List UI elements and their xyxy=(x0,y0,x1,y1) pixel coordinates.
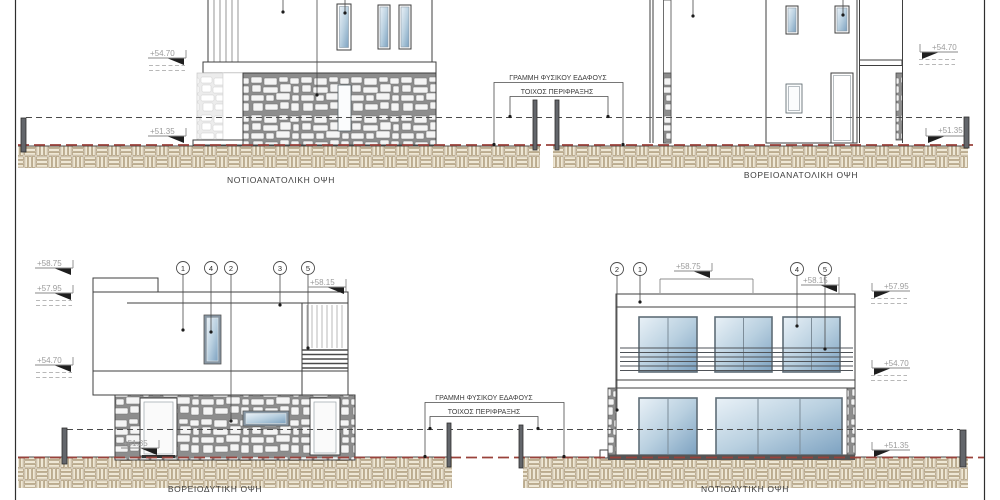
window xyxy=(204,315,221,364)
level-mark: +58.15 xyxy=(801,276,839,294)
porch-beam xyxy=(860,60,903,66)
window xyxy=(786,84,802,113)
keynote-number: 1 xyxy=(181,264,185,273)
level-value: +58.75 xyxy=(676,262,701,271)
floor-slab xyxy=(616,380,855,388)
level-value: +51.35 xyxy=(150,127,175,136)
level-value: +54.70 xyxy=(932,43,957,52)
level-mark: +58.75 xyxy=(674,262,712,278)
callout-label: ΤΟΙΧΟΣ ΠΕΡΙΦΡΑΞΗΣ xyxy=(521,89,594,96)
level-mark: +57.95 xyxy=(35,284,73,306)
keynote-number: 2 xyxy=(229,264,233,273)
stone-pier xyxy=(847,388,855,455)
elevation-title: ΝΟΤΙΟΑΝΑΤΟΛΙΚΗ ΟΨΗ xyxy=(227,175,335,185)
keynote-number: 4 xyxy=(795,265,799,274)
parapet-dimension-bracket xyxy=(660,279,753,293)
level-value: +57.95 xyxy=(884,282,909,291)
window xyxy=(378,5,390,49)
stone-wall-light xyxy=(197,73,223,140)
level-mark: +54.70 xyxy=(871,359,910,381)
level-value: +58.15 xyxy=(803,276,828,285)
glazed-door xyxy=(639,398,697,455)
level-value: +51.35 xyxy=(938,126,963,135)
door xyxy=(831,73,853,143)
elevation-title: ΒΟΡΕΙΟΔΥΤΙΚΗ ΟΨΗ xyxy=(168,484,262,494)
window xyxy=(243,411,289,426)
level-value: +54.70 xyxy=(37,356,62,365)
architectural-drawing-sheet: +54.70 +51.35 ΝΟΤΙΟΑΝΑΤΟΛΙΚΗ ΟΨΗ xyxy=(0,0,1000,500)
level-value: +58.15 xyxy=(310,278,335,287)
level-mark: +54.70 xyxy=(148,49,186,71)
roof-slab xyxy=(616,294,855,307)
keynote-number: 4 xyxy=(209,264,213,273)
level-value: +54.70 xyxy=(150,49,175,58)
stone-column xyxy=(896,73,903,140)
level-value: +51.35 xyxy=(123,439,148,448)
floor-slab xyxy=(203,62,436,73)
elevation-title: ΒΟΡΕΙΟΑΝΑΤΟΛΙΚΗ ΟΨΗ xyxy=(744,170,858,180)
level-mark: +51.35 xyxy=(872,441,910,457)
keynote-number: 5 xyxy=(306,264,310,273)
window xyxy=(399,5,411,49)
keynote-number: 2 xyxy=(615,265,619,274)
level-mark: +51.35 xyxy=(926,126,964,143)
parapet xyxy=(93,278,158,292)
callout-label: ΓΡΑΜΜΗ ΦΥΣΙΚΟΥ ΕΔΑΦΟΥΣ xyxy=(509,75,607,82)
level-mark: +51.35 xyxy=(148,127,186,143)
level-mark: +54.70 xyxy=(919,43,958,65)
level-value: +57.95 xyxy=(37,284,62,293)
stone-pier xyxy=(608,388,616,455)
callout-label: ΓΡΑΜΜΗ ΦΥΣΙΚΟΥ ΕΔΑΦΟΥΣ xyxy=(435,395,533,402)
window xyxy=(337,4,351,50)
level-mark: +57.95 xyxy=(871,282,910,304)
level-value: +51.35 xyxy=(884,441,909,450)
door xyxy=(310,398,340,455)
window xyxy=(715,317,772,372)
window xyxy=(639,317,697,372)
window xyxy=(835,6,849,33)
callout-label: ΤΟΙΧΟΣ ΠΕΡΙΦΡΑΞΗΣ xyxy=(448,409,521,416)
callout-ground-line-bottom: ΓΡΑΜΜΗ ΦΥΣΙΚΟΥ ΕΔΑΦΟΥΣ xyxy=(423,395,565,458)
keynote-number: 3 xyxy=(278,264,282,273)
level-value: +58.75 xyxy=(37,259,62,268)
window xyxy=(783,317,840,372)
glazed-door xyxy=(716,398,842,455)
level-mark: +54.70 xyxy=(35,356,73,378)
window xyxy=(786,6,798,34)
keynote-number: 1 xyxy=(638,265,642,274)
keynote-number: 5 xyxy=(823,265,827,274)
level-value: +54.70 xyxy=(884,359,909,368)
elevation-title: ΝΟΤΙΟΔΥΤΙΚΗ ΟΨΗ xyxy=(701,484,789,494)
door-opening xyxy=(338,85,351,131)
level-mark: +58.75 xyxy=(35,259,73,275)
earth-hatch-bottom xyxy=(18,457,968,488)
earth-hatch-top xyxy=(18,146,968,168)
